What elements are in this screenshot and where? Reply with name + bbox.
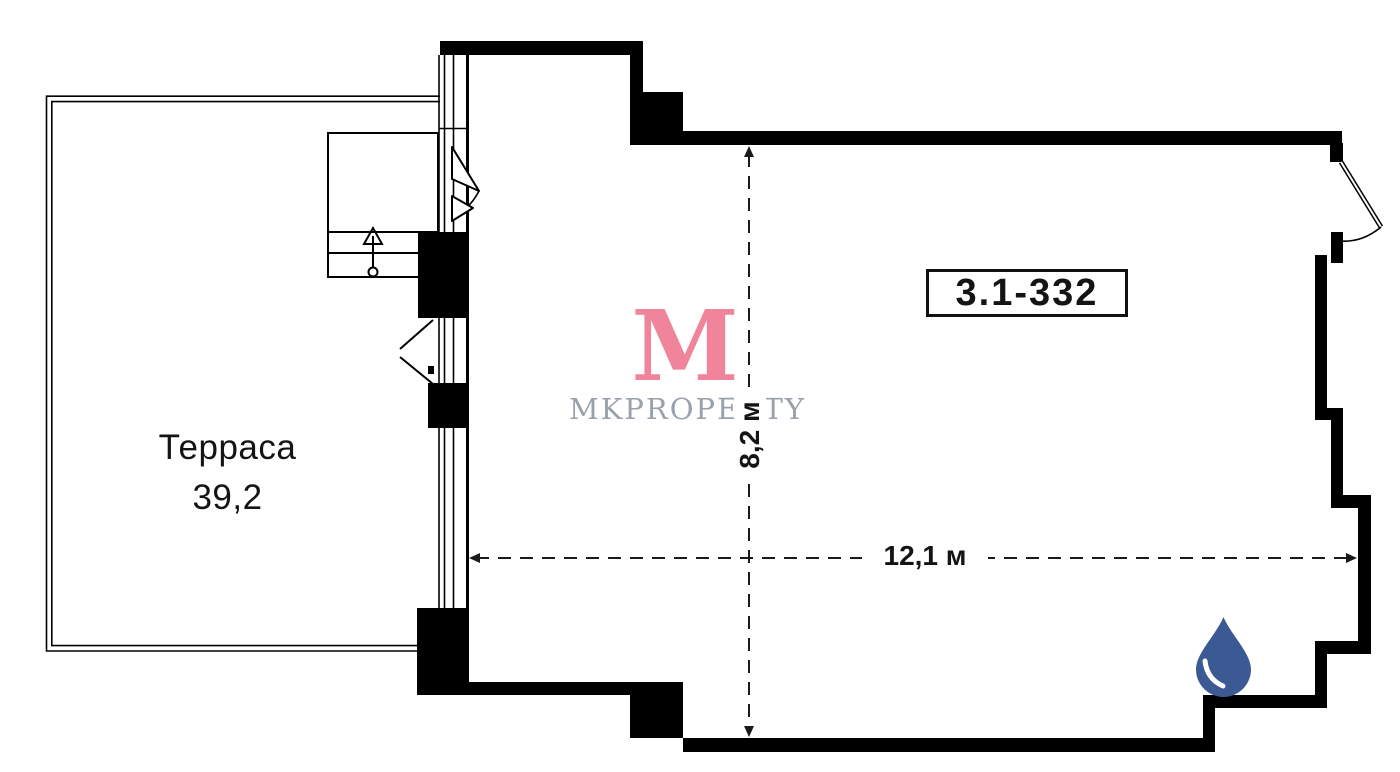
water-drop-icon: [1196, 617, 1251, 697]
terrace-name: Терраса: [90, 423, 365, 473]
floor-plan-page: M MKPROPERTY: [0, 0, 1400, 772]
room-number: 3.1-332: [956, 272, 1099, 315]
entrance-door-swing: [1339, 162, 1381, 241]
dimension-height-label: 8,2 м: [734, 387, 766, 483]
interior-door-swing: [452, 147, 479, 221]
terrace-door-swing: [400, 320, 434, 384]
dimension-width-label: 12,1 м: [862, 534, 988, 578]
terrace-label: Терраса 39,2: [90, 423, 365, 522]
terrace-area: 39,2: [90, 473, 365, 523]
floor-plan-drawing: [0, 0, 1400, 772]
room-number-box: 3.1-332: [926, 269, 1128, 317]
